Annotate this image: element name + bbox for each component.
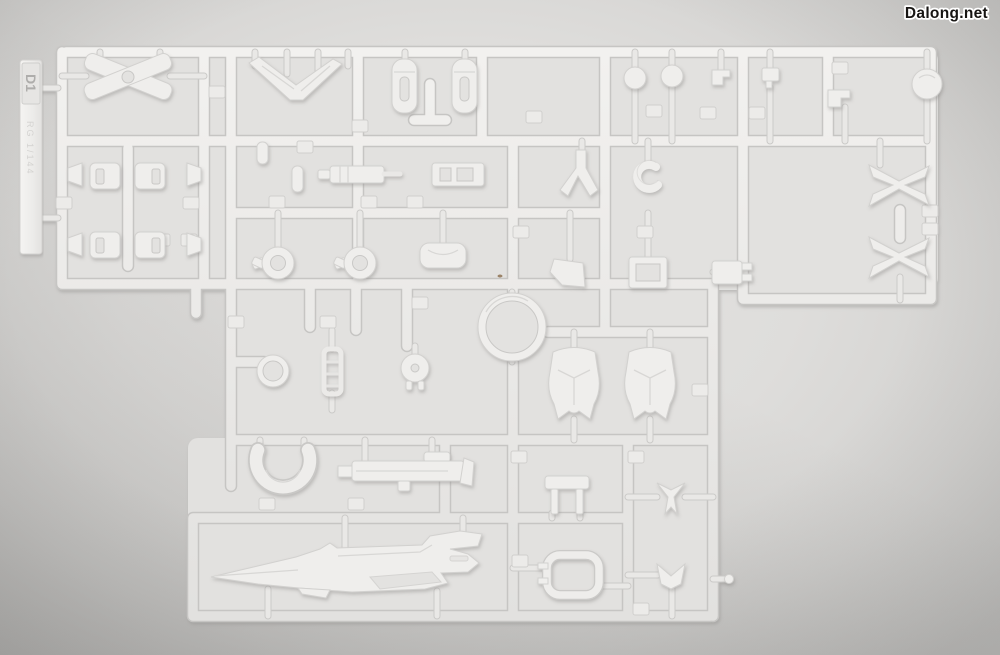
part-chest-armor <box>549 348 600 420</box>
part-head-ball <box>912 69 942 99</box>
part-rounded-plate <box>420 243 466 268</box>
part-small-ring <box>257 355 289 387</box>
part-box-frame <box>432 163 484 186</box>
watermark-text: Dalong.net <box>905 5 988 22</box>
part-foot <box>392 59 417 113</box>
dust-speck <box>498 275 503 278</box>
runner-tag: D1 RG 1/144 <box>20 60 42 254</box>
tag-molded-text: RG 1/144 <box>25 121 35 176</box>
part-chest-armor <box>625 348 676 420</box>
part-pin-stub <box>725 575 734 584</box>
photo: D1 RG 1/144 Dalong.net <box>0 0 1000 655</box>
part-large-ring <box>478 293 546 361</box>
part-foot <box>452 59 477 113</box>
tag-label: D1 <box>23 74 39 92</box>
part-open-box <box>629 257 667 288</box>
